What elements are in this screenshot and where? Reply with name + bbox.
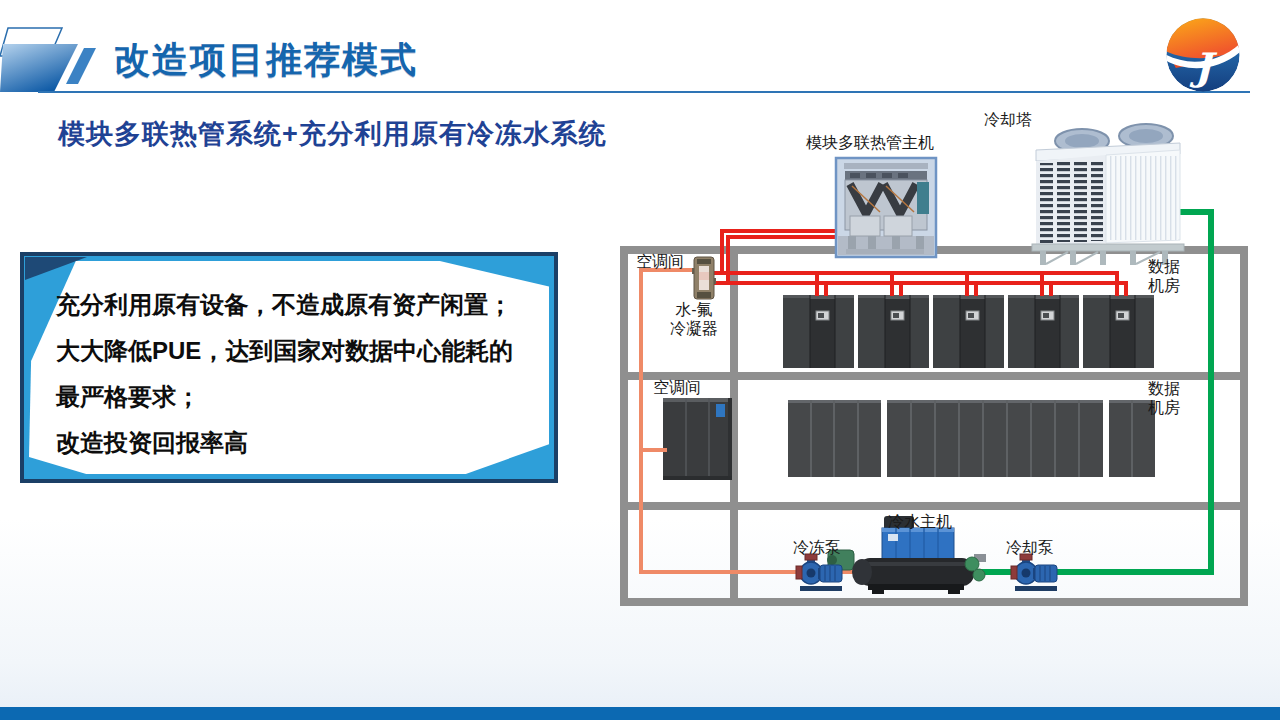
cooling-pump-label: 冷却泵	[1006, 538, 1054, 557]
ac-room-2-label: 空调间	[653, 378, 701, 397]
heat-pipe-unit-label: 模块多联热管主机	[806, 133, 934, 152]
footer-bar	[0, 707, 1280, 720]
heat-pipe-unit-image	[836, 158, 936, 257]
chiller-label: 冷水主机	[888, 512, 952, 531]
system-diagram	[0, 0, 1280, 720]
rack-row-2	[788, 400, 1155, 477]
condenser-label: 水-氟 冷凝器	[660, 300, 728, 338]
data-room-1-label: 数据 机房	[1148, 257, 1180, 295]
chilled-pump-label: 冷冻泵	[793, 538, 841, 557]
cooling-pump-image	[1011, 554, 1057, 591]
cooling-tower-label: 冷却塔	[984, 110, 1032, 129]
rack-row-1	[783, 295, 1154, 368]
ac-room-1-label: 空调间	[636, 252, 684, 271]
cooling-tower-image	[1032, 124, 1184, 265]
slide: 改造项目推荐模式 J 模块多联热管系统+充分利用原有冷冻水系统 充分利用原有设备…	[0, 0, 1280, 720]
condenser-image	[692, 257, 716, 299]
data-room-2-label: 数据 机房	[1148, 379, 1180, 417]
crac-unit-image	[663, 398, 732, 480]
